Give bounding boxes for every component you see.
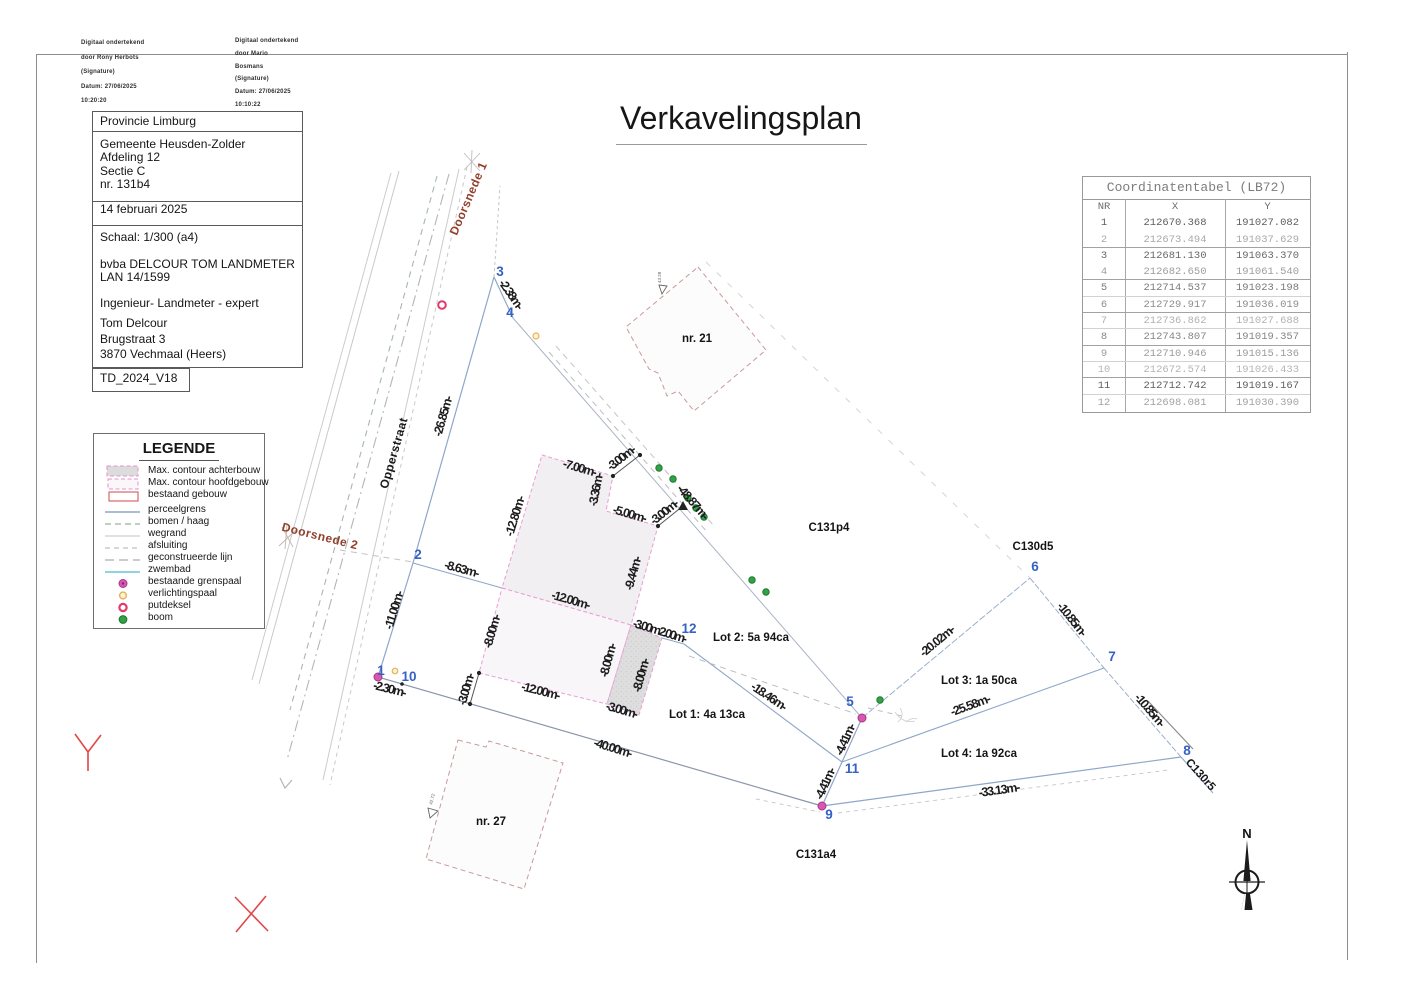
svg-text:-11.00m-: -11.00m- [382, 589, 407, 631]
svg-text:Lot 3: 1a 50ca: Lot 3: 1a 50ca [941, 675, 1018, 687]
svg-text:C131a4: C131a4 [796, 849, 837, 861]
svg-text:1: 1 [377, 663, 385, 678]
svg-text:11: 11 [845, 761, 860, 776]
svg-text:9: 9 [825, 807, 833, 822]
svg-text:C131p4: C131p4 [809, 522, 851, 534]
svg-text:-26.85m-: -26.85m- [431, 394, 456, 438]
svg-text:C130d5: C130d5 [1013, 541, 1055, 553]
svg-text:C130r5: C130r5 [1183, 757, 1218, 794]
svg-text:-10.85m-: -10.85m- [1132, 691, 1169, 730]
svg-text:-4.41m-: -4.41m- [832, 721, 859, 758]
svg-text:-40.00m-: -40.00m- [592, 736, 634, 761]
svg-text:2: 2 [414, 547, 422, 562]
svg-text:7: 7 [1108, 649, 1116, 664]
svg-text:5: 5 [846, 694, 854, 709]
svg-text:Doorsnede 1: Doorsnede 1 [447, 160, 490, 237]
svg-text:8: 8 [1183, 743, 1191, 758]
svg-text:3: 3 [496, 264, 504, 279]
svg-text:N: N [1242, 826, 1251, 841]
svg-text:6: 6 [1031, 559, 1039, 574]
svg-text:nr. 27: nr. 27 [476, 816, 506, 828]
svg-text:-48.87m-: -48.87m- [674, 482, 712, 523]
svg-text:-10.85m-: -10.85m- [1054, 600, 1090, 640]
svg-text:Opperstraat: Opperstraat [377, 416, 411, 491]
svg-text:Lot 4: 1a 92ca: Lot 4: 1a 92ca [941, 748, 1018, 760]
svg-text:10: 10 [401, 669, 416, 684]
svg-text:4: 4 [506, 305, 514, 320]
svg-text:12: 12 [681, 621, 696, 636]
svg-text:43.28: 43.28 [657, 271, 662, 283]
svg-text:-3.00m-: -3.00m- [647, 496, 681, 528]
svg-text:42.72: 42.72 [428, 793, 436, 806]
svg-text:Lot 2: 5a 94ca: Lot 2: 5a 94ca [713, 632, 790, 644]
svg-text:-33.13m-: -33.13m- [978, 780, 1022, 800]
svg-text:Doorsnede 2: Doorsnede 2 [280, 520, 359, 552]
svg-text:Lot 1: 4a 13ca: Lot 1: 4a 13ca [669, 709, 746, 721]
svg-text:nr. 21: nr. 21 [682, 333, 713, 345]
svg-text:-4.41m-: -4.41m- [812, 765, 839, 802]
svg-text:-20.02m-: -20.02m- [917, 622, 958, 660]
svg-text:-25.58m-: -25.58m- [949, 691, 993, 719]
